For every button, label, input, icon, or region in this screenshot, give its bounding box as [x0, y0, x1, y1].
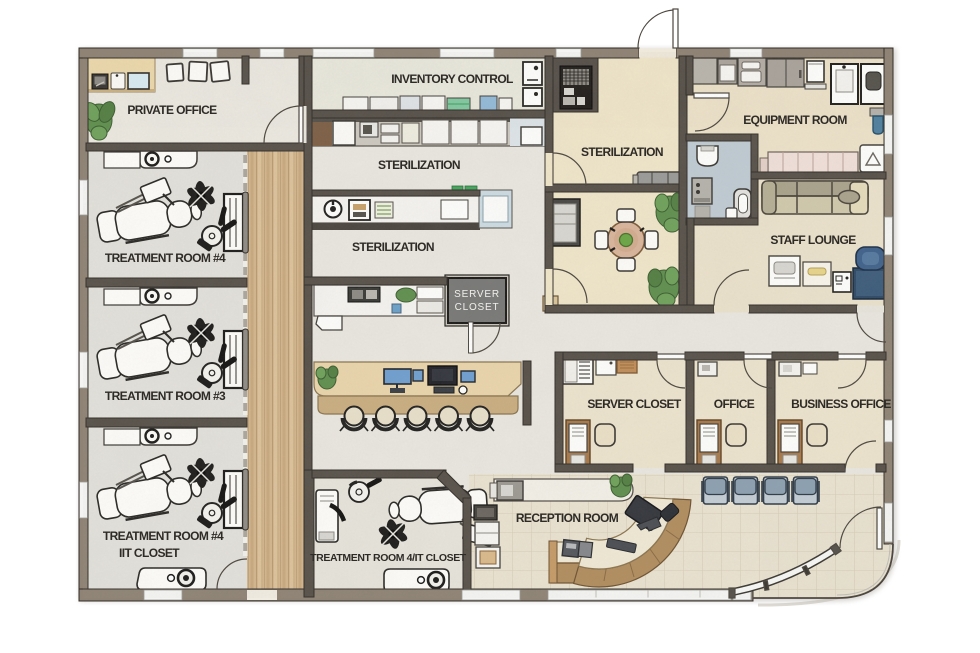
svg-text:TREATMENT ROOM #4: TREATMENT ROOM #4 [103, 529, 224, 543]
svg-text:IIT CLOSET: IIT CLOSET [119, 546, 180, 560]
svg-text:SERVER: SERVER [454, 289, 500, 300]
svg-text:STAFF LOUNGE: STAFF LOUNGE [770, 233, 856, 247]
svg-text:STERILIZATION: STERILIZATION [378, 158, 460, 172]
svg-text:TREATMENT ROOM 4/IT CLOSET: TREATMENT ROOM 4/IT CLOSET [310, 552, 467, 564]
svg-text:CLOSET: CLOSET [455, 302, 500, 313]
svg-text:BUSINESS OFFICE: BUSINESS OFFICE [791, 397, 891, 411]
svg-text:STERILIZATION: STERILIZATION [352, 240, 434, 254]
svg-text:STERILIZATION: STERILIZATION [581, 145, 663, 159]
svg-text:TREATMENT ROOM #4: TREATMENT ROOM #4 [105, 251, 226, 265]
svg-text:RECEPTION ROOM: RECEPTION ROOM [516, 511, 619, 525]
svg-text:PRIVATE OFFICE: PRIVATE OFFICE [127, 103, 217, 117]
svg-text:EQUIPMENT ROOM: EQUIPMENT ROOM [743, 113, 847, 127]
svg-text:OFFICE: OFFICE [714, 397, 755, 411]
svg-text:TREATMENT ROOM #3: TREATMENT ROOM #3 [105, 389, 226, 403]
svg-text:INVENTORY CONTROL: INVENTORY CONTROL [391, 72, 513, 86]
svg-text:SERVER CLOSET: SERVER CLOSET [587, 397, 682, 411]
